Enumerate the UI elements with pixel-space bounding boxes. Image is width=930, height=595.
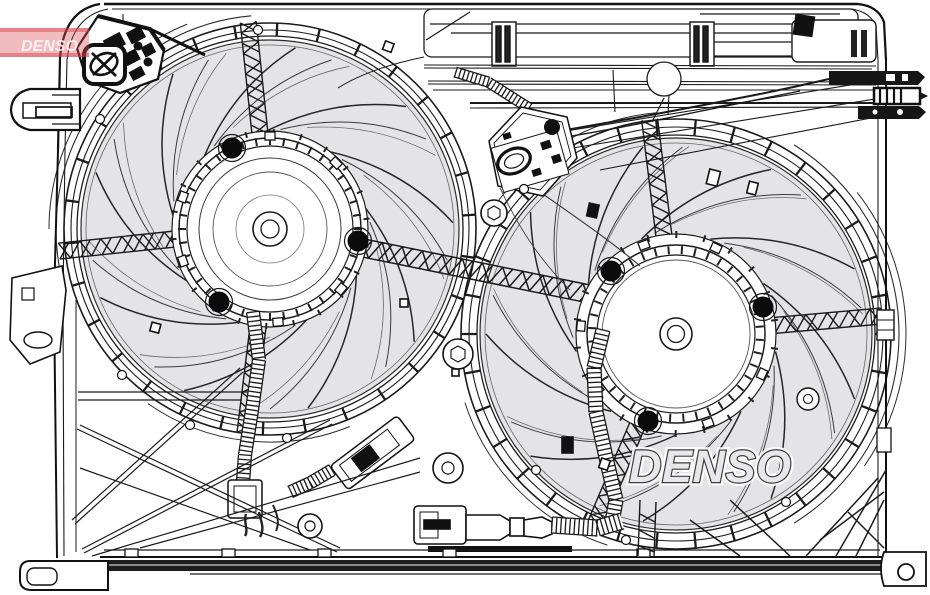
svg-text:DENSO: DENSO: [629, 441, 792, 492]
svg-text:DENSO: DENSO: [21, 38, 78, 55]
